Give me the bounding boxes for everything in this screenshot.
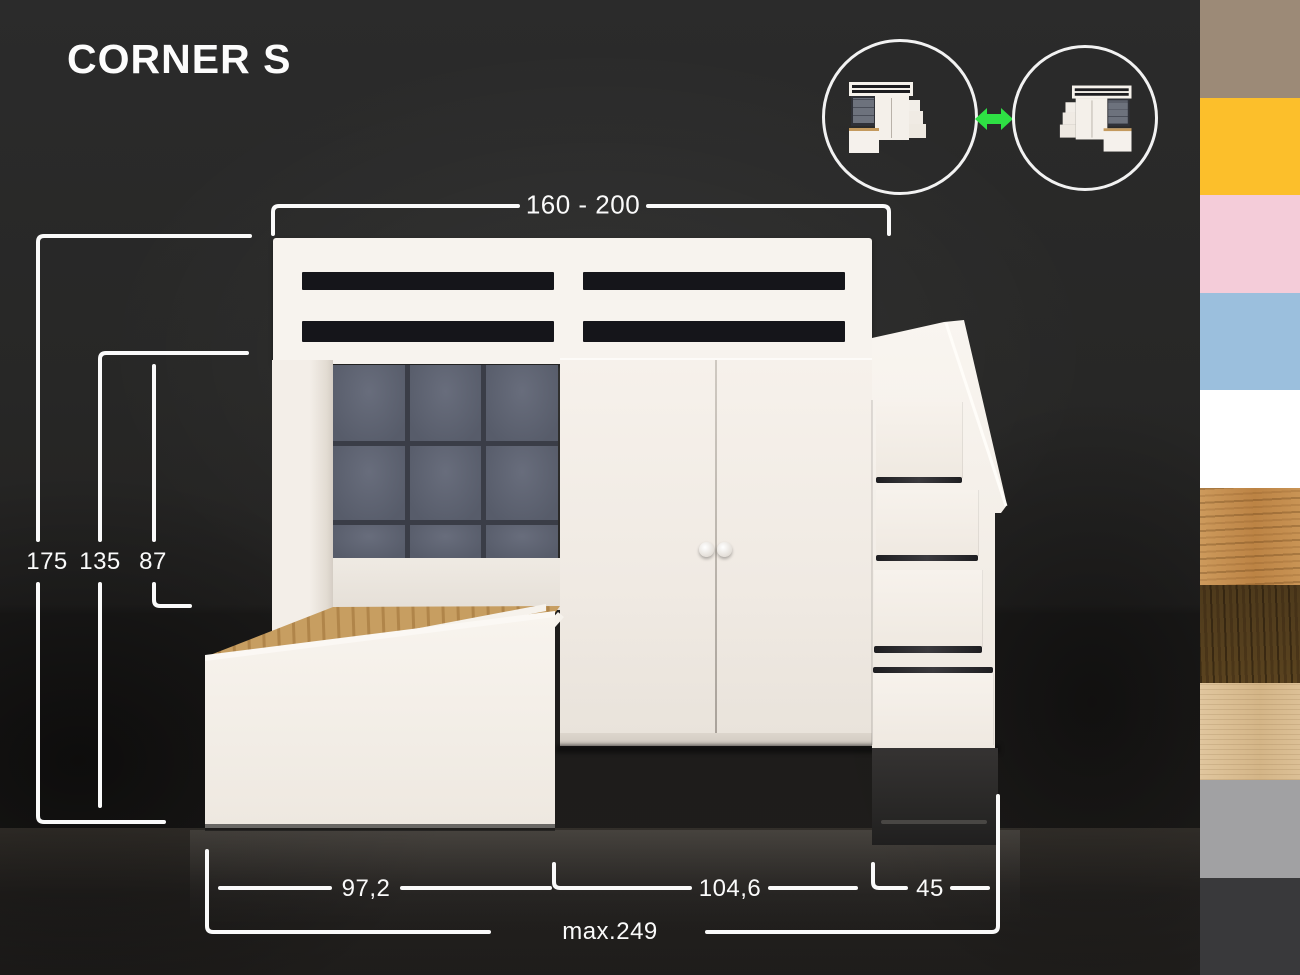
dim-label-height-total: 175: [26, 548, 68, 576]
stair-drawer-3-handle: [874, 646, 982, 653]
wardrobe-knob-left: [699, 542, 714, 557]
cushion-panel: [486, 365, 558, 441]
cushion-panel: [486, 525, 558, 558]
swatch-light-wood[interactable]: [1200, 683, 1300, 781]
headboard-lower-wall: [333, 558, 560, 610]
mini-stairs: [1060, 125, 1076, 138]
mini-bed: [849, 128, 879, 153]
stair-bottom-drawer-shadowed: [872, 748, 998, 845]
swatch-light-blue[interactable]: [1200, 293, 1300, 391]
mini-door-seam: [891, 98, 892, 138]
mini-stairs: [1063, 112, 1076, 124]
railing-slot: [302, 321, 554, 342]
variant-left-miniature: [849, 82, 949, 154]
cushion-panel: [410, 525, 482, 558]
cushion-panel: [410, 365, 482, 441]
swatch-oak-wood[interactable]: [1200, 488, 1300, 586]
cushion-panel: [333, 365, 405, 441]
dim-line-height-total: [38, 236, 250, 822]
mini-stairs: [909, 111, 923, 124]
bed-side-rail: [298, 604, 546, 660]
swatch-walnut-wood[interactable]: [1200, 585, 1300, 683]
mini-stairs: [909, 100, 920, 111]
mini-wardrobe: [875, 96, 909, 140]
product-title: CORNER S: [67, 36, 291, 83]
variant-right-thumbnail[interactable]: [1012, 45, 1158, 191]
cushion-panel: [486, 446, 558, 520]
bed-slat-deck: [205, 606, 560, 657]
dim-label-wardrobe-depth: 104,6: [699, 875, 762, 903]
railing-slot: [302, 272, 554, 290]
cushion-panel: [410, 446, 482, 520]
swatch-charcoal[interactable]: [1200, 878, 1300, 975]
bed-side-rail: [528, 612, 564, 651]
railing-slot: [583, 321, 845, 342]
dim-label-bed-depth: 97,2: [342, 875, 391, 903]
bed-box-front: [205, 613, 555, 828]
dim-label-stairs-depth: 45: [916, 875, 944, 903]
product-dimension-diagram: CORNER S: [0, 0, 1300, 975]
dim-label-top-width: 160 - 200: [526, 190, 640, 221]
mini-stairs: [1065, 102, 1075, 112]
stair-bottom-drawer-handle: [881, 820, 987, 824]
mini-cushions: [853, 98, 874, 123]
swatch-yellow[interactable]: [1200, 98, 1300, 196]
variant-right-miniature: [1039, 86, 1132, 153]
swatch-white[interactable]: [1200, 390, 1300, 488]
mini-door-seam: [1092, 100, 1093, 137]
cushion-panel: [333, 525, 405, 558]
stair-drawer-1: [876, 402, 963, 478]
swatch-strip: [1200, 0, 1300, 975]
wardrobe: [560, 358, 876, 735]
cushion-panel: [333, 446, 405, 520]
swatch-gray[interactable]: [1200, 780, 1300, 878]
stair-drawer-1-handle: [876, 477, 962, 483]
dim-line-height-mid: [100, 353, 247, 806]
swap-arrow-glyph: [975, 108, 1013, 130]
mini-cushions: [1108, 100, 1128, 123]
swatch-taupe[interactable]: [1200, 0, 1300, 98]
dim-label-height-headboard: 87: [139, 548, 167, 576]
mini-bed: [1104, 128, 1132, 151]
loft-railing: [273, 238, 872, 364]
dim-label-max-width: max.249: [562, 918, 658, 946]
stair-drawer-2: [876, 490, 979, 556]
headboard-cushions: [333, 365, 558, 558]
stair-drawer-2-handle: [876, 555, 978, 561]
swap-arrow-icon: [974, 105, 1014, 133]
mini-railing: [849, 82, 913, 96]
alcove-left-pillar: [272, 360, 333, 660]
variant-left-thumbnail[interactable]: [822, 39, 978, 195]
swatch-pink[interactable]: [1200, 195, 1300, 293]
wardrobe-knob-right: [717, 542, 732, 557]
dim-label-height-mid: 135: [79, 548, 121, 576]
railing-slot: [583, 272, 845, 290]
mini-railing: [1072, 86, 1132, 99]
mini-stairs: [909, 124, 926, 138]
bed-box-top-edge: [205, 611, 555, 661]
stair-drawer-3: [874, 570, 983, 647]
stair-drawer-4: [873, 673, 994, 745]
